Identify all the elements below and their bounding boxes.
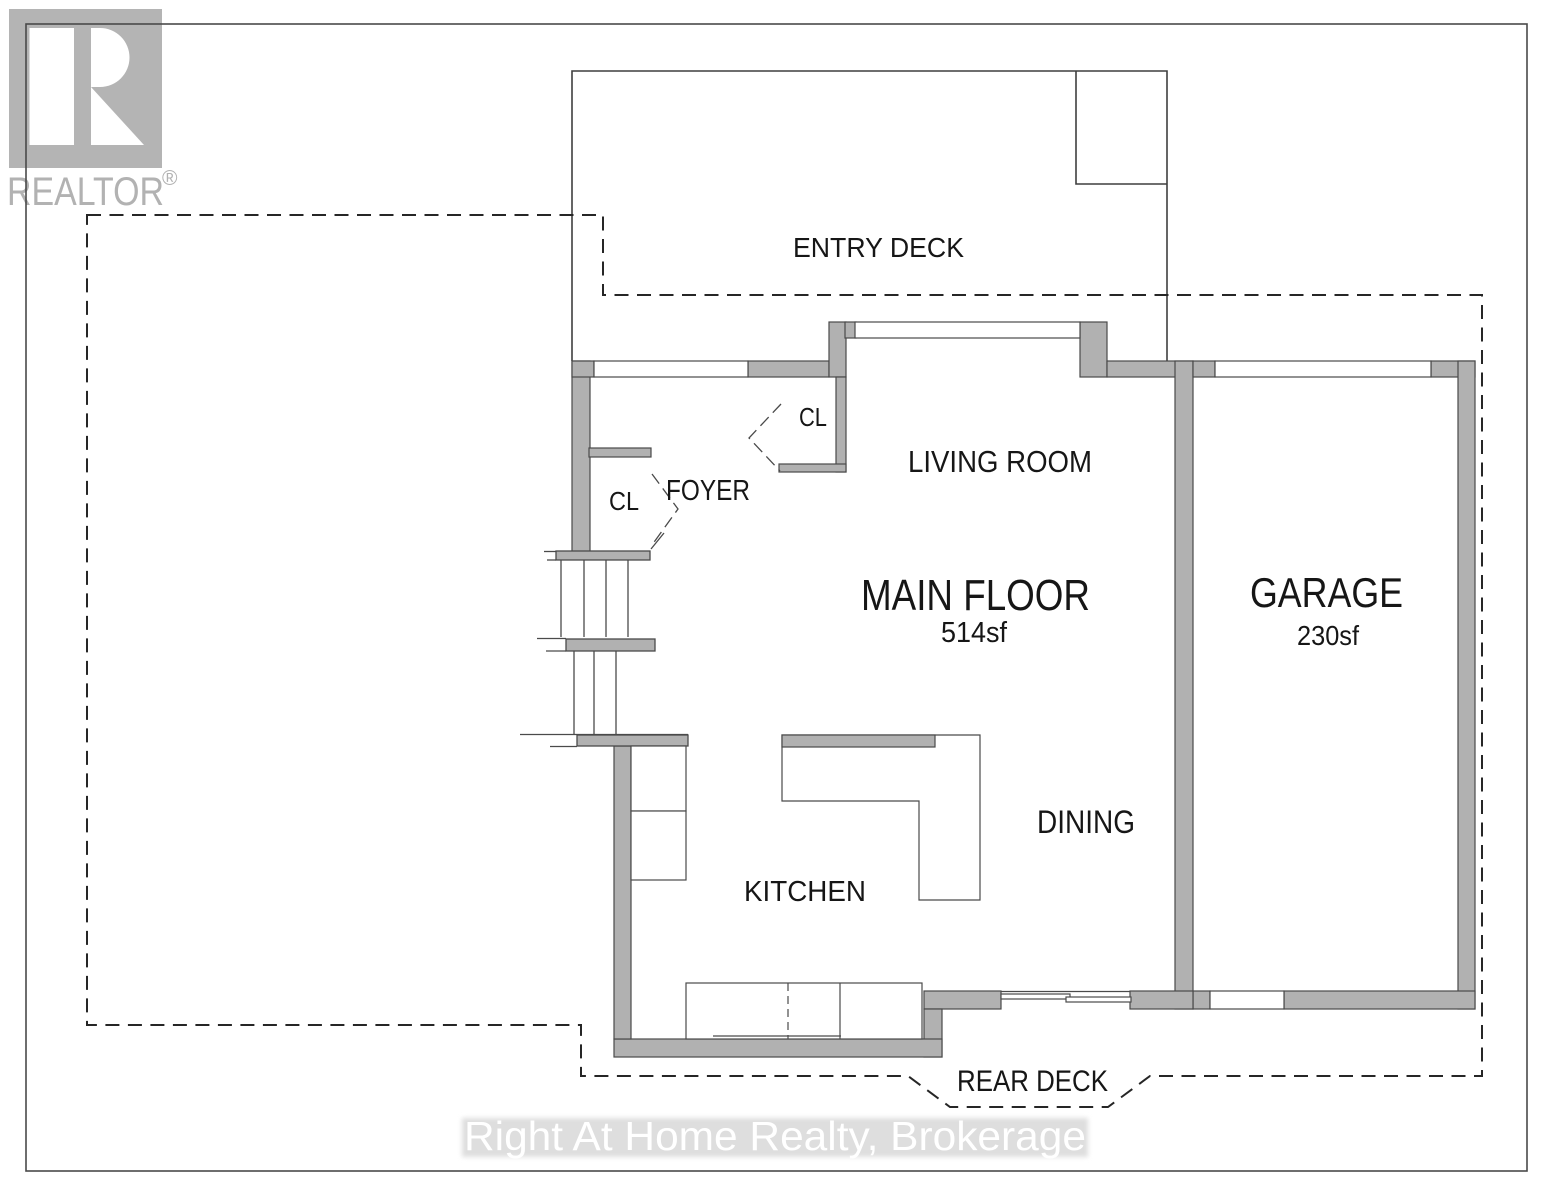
svg-text:CL: CL [609,486,639,516]
svg-text:514sf: 514sf [941,617,1008,649]
svg-text:LIVING ROOM: LIVING ROOM [908,444,1092,479]
svg-text:230sf: 230sf [1297,620,1359,651]
svg-text:CL: CL [799,402,827,432]
svg-text:MAIN FLOOR: MAIN FLOOR [861,571,1090,620]
svg-text:Right At Home Realty, Brokerag: Right At Home Realty, Brokerage [464,1113,1086,1159]
svg-text:FOYER: FOYER [666,475,750,507]
svg-text:REALTOR: REALTOR [7,170,164,214]
svg-text:DINING: DINING [1037,804,1135,840]
svg-text:KITCHEN: KITCHEN [744,876,866,908]
svg-text:GARAGE: GARAGE [1250,569,1403,616]
svg-text:®: ® [162,167,178,190]
svg-text:ENTRY DECK: ENTRY DECK [793,232,964,263]
svg-text:REAR DECK: REAR DECK [957,1065,1108,1098]
